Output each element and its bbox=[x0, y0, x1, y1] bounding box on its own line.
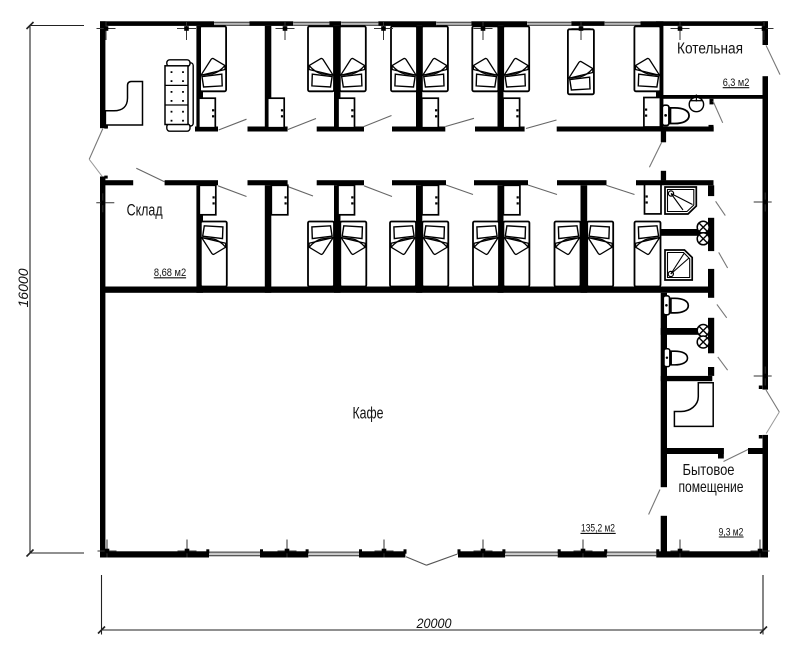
svg-text:помещение: помещение bbox=[678, 479, 743, 496]
svg-text:Кафе: Кафе bbox=[353, 405, 384, 423]
svg-text:16000: 16000 bbox=[15, 268, 31, 307]
svg-text:Склад: Склад bbox=[127, 201, 163, 220]
svg-text:8,68 м2: 8,68 м2 bbox=[154, 267, 186, 279]
svg-text:Бытовое: Бытовое bbox=[682, 462, 734, 479]
svg-text:20000: 20000 bbox=[416, 615, 452, 631]
svg-text:Котельная: Котельная bbox=[677, 41, 743, 58]
